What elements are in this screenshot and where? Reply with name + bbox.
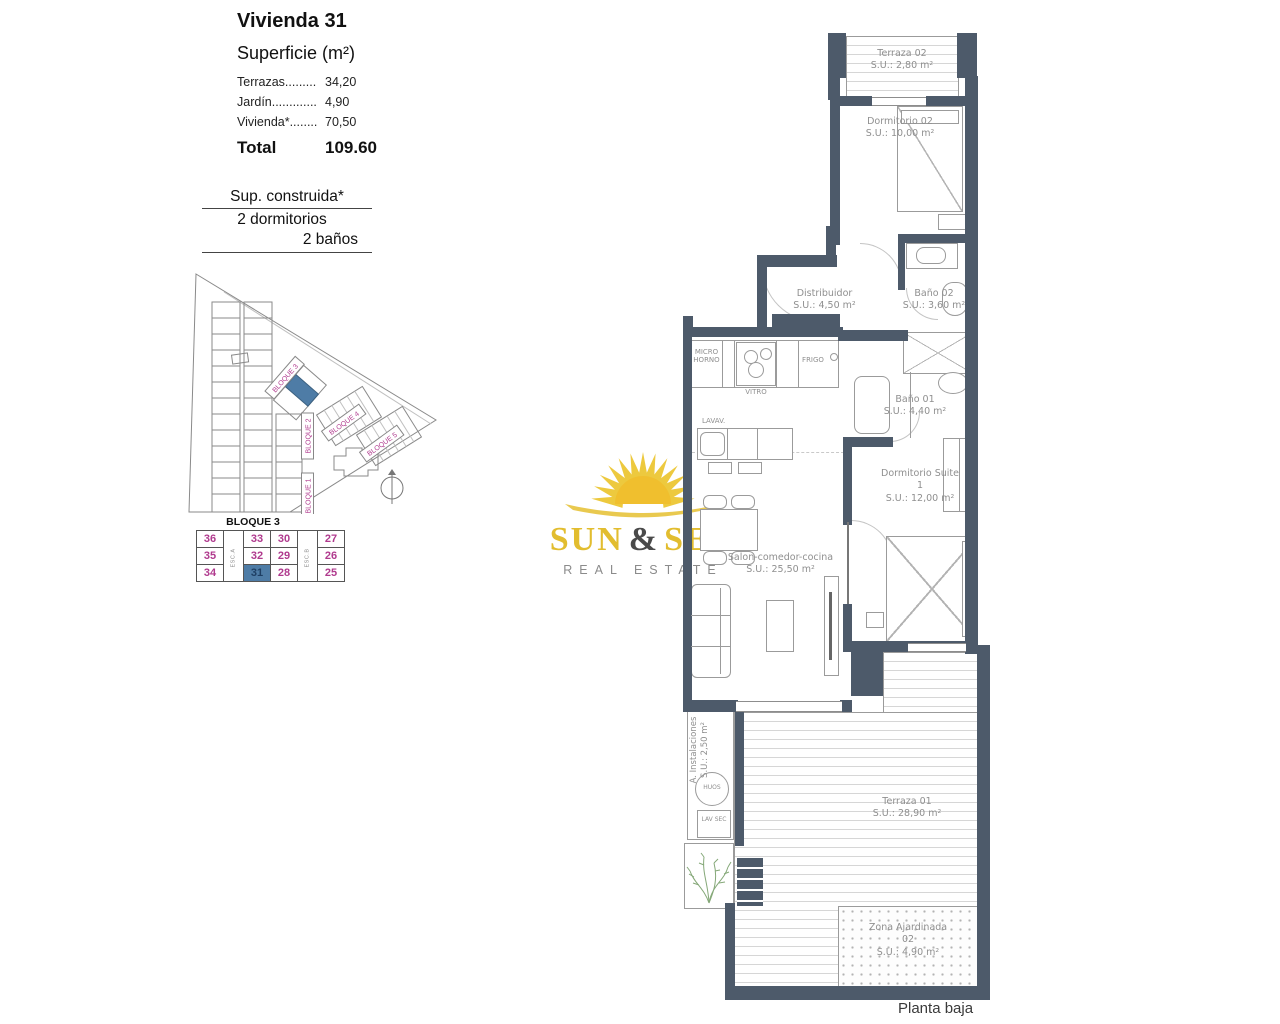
terraza-01-deck-upper bbox=[883, 652, 979, 714]
unit-cell-highlighted: 31 bbox=[244, 565, 271, 582]
room-area: S.U.: 4,90 m² bbox=[868, 947, 948, 959]
sofa-seat-line bbox=[720, 588, 721, 674]
room-name: A. Instalaciones bbox=[689, 700, 700, 800]
wall bbox=[977, 645, 990, 1000]
room-area: S.U.: 2,80 m² bbox=[852, 60, 952, 72]
sink-basin bbox=[916, 247, 946, 264]
unit-cell: 32 bbox=[244, 548, 271, 565]
wall bbox=[725, 986, 990, 1000]
esc-b-label: ESC.B bbox=[305, 548, 311, 567]
wall bbox=[838, 330, 908, 341]
surface-row: Terrazas......... 34,20 bbox=[237, 72, 377, 92]
room-label-zona: Zona Ajardinada 02 S.U.: 4,90 m² bbox=[868, 922, 948, 959]
nightstand bbox=[866, 612, 884, 628]
frigo-knob bbox=[830, 353, 838, 361]
surface-row: Vivienda*........ 70,50 bbox=[237, 112, 377, 132]
block-table-title: BLOQUE 3 bbox=[196, 516, 310, 528]
esc-a-cell: ESC.A bbox=[224, 531, 244, 582]
room-name: Dormitorio Suite 1 bbox=[878, 468, 962, 493]
window bbox=[736, 701, 842, 712]
cooktop-burner bbox=[760, 348, 772, 360]
window bbox=[872, 97, 926, 106]
stool bbox=[708, 462, 732, 474]
plant-icon bbox=[684, 843, 734, 909]
wall bbox=[772, 314, 840, 328]
surface-subtitle: Superficie (m²) bbox=[237, 43, 377, 64]
brand-word-sun: SUN bbox=[550, 521, 624, 558]
laundry-box bbox=[697, 810, 731, 838]
wall bbox=[826, 226, 836, 256]
unit-cell: 36 bbox=[197, 531, 224, 548]
dining-table bbox=[700, 509, 758, 551]
unit-cell: 26 bbox=[318, 548, 345, 565]
brand-ampersand: & bbox=[624, 521, 664, 558]
frigo-label: FRIGO bbox=[798, 356, 828, 364]
wall bbox=[725, 903, 735, 1000]
unit-cell: 35 bbox=[197, 548, 224, 565]
room-name: Distribuidor bbox=[772, 288, 877, 300]
laundry-label: LAV SEC bbox=[697, 817, 731, 824]
surface-row-label: Vivienda*........ bbox=[237, 112, 325, 132]
unit-cell: 25 bbox=[318, 565, 345, 582]
window bbox=[908, 643, 966, 652]
room-area: S.U.: 4,50 m² bbox=[772, 300, 877, 312]
wall bbox=[683, 327, 692, 712]
wall bbox=[843, 437, 852, 525]
wall bbox=[957, 33, 977, 78]
counter-divider bbox=[776, 340, 777, 388]
cooktop-burner bbox=[748, 362, 764, 378]
surface-row-value: 34,20 bbox=[325, 72, 356, 92]
counter-divider bbox=[757, 428, 758, 460]
unit-cell: 30 bbox=[271, 531, 298, 548]
construida-line3: 2 baños bbox=[202, 231, 372, 253]
kitchen-sink bbox=[700, 432, 725, 456]
counter-divider bbox=[727, 428, 728, 460]
site-plan: BLOQUE 3 BLOQUE 2 BLOQUE 1 BLOQUE 4 BLOQ… bbox=[184, 266, 466, 514]
room-label-salon: Salon-comedor-cocina S.U.: 25,50 m² bbox=[703, 552, 858, 577]
wall bbox=[965, 76, 978, 654]
wall bbox=[851, 652, 883, 696]
surface-row-value: 4,90 bbox=[325, 92, 349, 112]
room-area: S.U.: 25,50 m² bbox=[703, 564, 858, 576]
room-label-distribuidor: Distribuidor S.U.: 4,50 m² bbox=[772, 288, 877, 313]
room-label-suite: Dormitorio Suite 1 S.U.: 12,00 m² bbox=[878, 468, 962, 505]
wall bbox=[898, 234, 966, 243]
wall bbox=[757, 255, 767, 337]
counter-divider bbox=[734, 340, 735, 388]
floor-plan-page: { "info_panel": { "title": "Vivienda 31"… bbox=[0, 0, 1280, 1024]
room-area: S.U.: 12,00 m² bbox=[878, 493, 962, 505]
room-label-bano02: Baño 02 S.U.: 3,60 m² bbox=[898, 288, 970, 313]
chair bbox=[731, 495, 755, 509]
sofa-cushion-line bbox=[691, 615, 731, 616]
info-panel: Vivienda 31 Superficie (m²) Terrazas....… bbox=[237, 10, 377, 158]
counter-divider bbox=[722, 340, 723, 388]
room-name: Baño 01 bbox=[876, 394, 954, 406]
esc-a-label: ESC.A bbox=[231, 548, 237, 567]
esc-b-cell: ESC.B bbox=[298, 531, 318, 582]
room-name: Salon-comedor-cocina bbox=[703, 552, 858, 564]
block-table: BLOQUE 3 36 ESC.A 33 30 ESC.B 27 35 32 2… bbox=[196, 516, 345, 582]
wardrobe-cross bbox=[904, 333, 972, 373]
room-name: Baño 02 bbox=[898, 288, 970, 300]
door-arc-dormitorio02 bbox=[860, 243, 902, 285]
room-label-terraza01: Terraza 01 S.U.: 28,90 m² bbox=[852, 796, 962, 821]
surface-row-label: Jardín............. bbox=[237, 92, 325, 112]
total-row: Total 109.60 bbox=[237, 138, 377, 158]
wall bbox=[830, 98, 840, 245]
room-name: Terraza 01 bbox=[852, 796, 962, 808]
surface-row-label: Terrazas......... bbox=[237, 72, 325, 92]
unit-cell: 33 bbox=[244, 531, 271, 548]
page-title: Vivienda 31 bbox=[237, 10, 377, 33]
wall bbox=[838, 96, 872, 106]
room-area: S.U.: 4,40 m² bbox=[876, 406, 954, 418]
total-value: 109.60 bbox=[325, 138, 377, 158]
wall bbox=[851, 437, 893, 447]
block-table-grid: 36 ESC.A 33 30 ESC.B 27 35 32 29 26 34 3… bbox=[196, 530, 345, 582]
sofa-cushion-line bbox=[691, 646, 731, 647]
room-label-dormitorio02: Dormitorio 02 S.U.: 10,00 m² bbox=[845, 116, 955, 141]
wall bbox=[898, 240, 905, 290]
room-label-bano01: Baño 01 S.U.: 4,40 m² bbox=[876, 394, 954, 419]
room-area: S.U.: 3,60 m² bbox=[898, 300, 970, 312]
ac-unit bbox=[737, 858, 763, 906]
site-plan-bloque2-label: BLOQUE 2 bbox=[306, 418, 313, 453]
room-area: S.U.: 28,90 m² bbox=[852, 808, 962, 820]
sofa bbox=[691, 584, 731, 678]
room-name: Terraza 02 bbox=[852, 48, 952, 60]
construida-block: Sup. construida* 2 dormitorios 2 baños bbox=[202, 188, 372, 253]
unit-cell: 29 bbox=[271, 548, 298, 565]
room-name: Dormitorio 02 bbox=[845, 116, 955, 128]
site-plan-bloque1-label: BLOQUE 1 bbox=[306, 478, 313, 513]
wall bbox=[735, 702, 744, 846]
unit-cell: 28 bbox=[271, 565, 298, 582]
wall bbox=[683, 327, 843, 337]
construida-line2: 2 dormitorios bbox=[202, 209, 372, 231]
wall bbox=[757, 255, 837, 267]
instalaciones-label: A. Instalaciones S.U.: 2,50 m² bbox=[689, 700, 725, 800]
lavav-label: LAVAV. bbox=[702, 417, 758, 425]
wall bbox=[926, 96, 966, 106]
plan-caption: Planta baja bbox=[898, 1000, 973, 1017]
coffee-table bbox=[766, 600, 794, 652]
wardrobe bbox=[903, 332, 973, 374]
micro-horno-label: MICRO HORNO bbox=[691, 348, 722, 364]
total-label: Total bbox=[237, 138, 325, 158]
stool bbox=[738, 462, 762, 474]
unit-cell: 34 bbox=[197, 565, 224, 582]
wall bbox=[828, 33, 846, 78]
nightstand bbox=[938, 214, 966, 230]
chair bbox=[703, 495, 727, 509]
surface-row-value: 70,50 bbox=[325, 112, 356, 132]
vitro-label: VITRO bbox=[736, 388, 776, 396]
unit-cell: 27 bbox=[318, 531, 345, 548]
surface-row: Jardín............. 4,90 bbox=[237, 92, 377, 112]
room-area: S.U.: 2,50 m² bbox=[700, 700, 711, 800]
toilet bbox=[938, 372, 968, 394]
tv-screen bbox=[829, 592, 832, 660]
construida-line1: Sup. construida* bbox=[202, 188, 372, 209]
room-area: S.U.: 10,00 m² bbox=[845, 128, 955, 140]
room-name: Zona Ajardinada 02 bbox=[868, 922, 948, 947]
room-label-terraza02: Terraza 02 S.U.: 2,80 m² bbox=[852, 48, 952, 73]
